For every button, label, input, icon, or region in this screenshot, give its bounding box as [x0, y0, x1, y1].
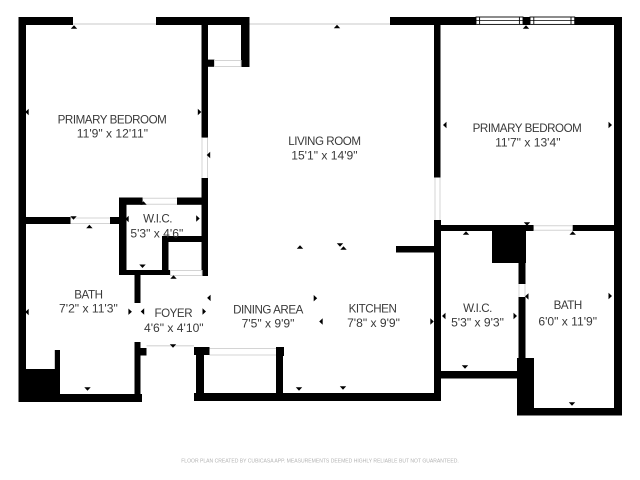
svg-text:KITCHEN: KITCHEN: [349, 303, 397, 316]
svg-text:7'5" x 9'9": 7'5" x 9'9": [242, 317, 295, 331]
svg-text:6'0" x 11'9": 6'0" x 11'9": [538, 315, 597, 329]
svg-text:W.I.C.: W.I.C.: [143, 212, 172, 225]
svg-text:15'1" x 14'9": 15'1" x 14'9": [291, 148, 357, 162]
svg-text:BATH: BATH: [554, 299, 582, 312]
svg-text:LIVING ROOM: LIVING ROOM: [288, 135, 360, 148]
svg-text:PRIMARY BEDROOM: PRIMARY BEDROOM: [473, 122, 582, 135]
svg-text:BATH: BATH: [74, 289, 102, 302]
svg-text:7'2" x 11'3": 7'2" x 11'3": [59, 302, 118, 316]
svg-text:W.I.C.: W.I.C.: [463, 302, 492, 315]
svg-text:PRIMARY BEDROOM: PRIMARY BEDROOM: [58, 114, 167, 127]
svg-text:11'9" x 12'11": 11'9" x 12'11": [77, 127, 148, 141]
svg-text:5'3" x 9'3": 5'3" x 9'3": [451, 316, 504, 330]
svg-text:7'8" x 9'9": 7'8" x 9'9": [347, 316, 400, 330]
svg-text:5'3" x 4'6": 5'3" x 4'6": [130, 227, 183, 241]
svg-text:DINING AREA: DINING AREA: [233, 304, 303, 317]
svg-text:4'6" x 4'10": 4'6" x 4'10": [144, 321, 204, 335]
svg-text:11'7" x 13'4": 11'7" x 13'4": [495, 136, 560, 150]
svg-text:FOYER: FOYER: [154, 307, 192, 320]
svg-text:FLOOR PLAN CREATED BY CUBICASA: FLOOR PLAN CREATED BY CUBICASA APP. MEAS…: [181, 459, 459, 465]
